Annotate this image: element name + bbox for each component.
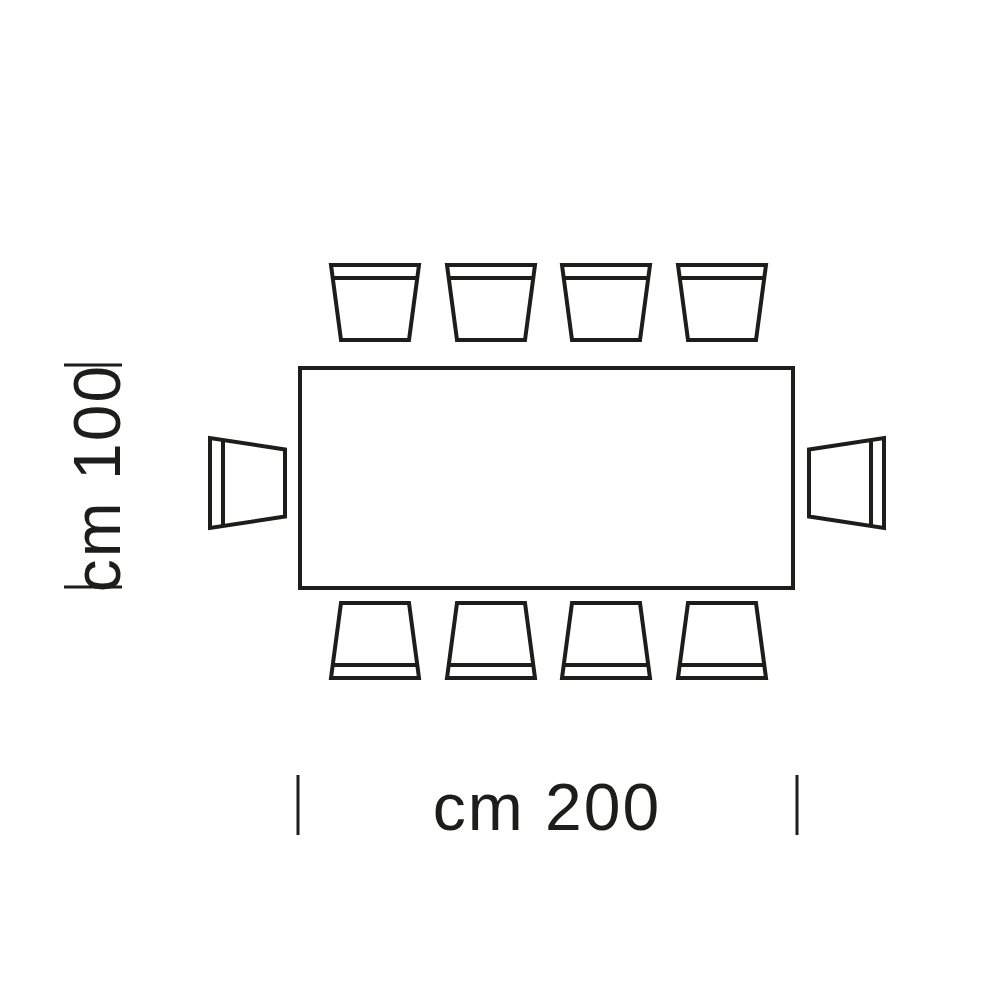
chair-top-4 [678, 265, 766, 340]
diagram-line-work [210, 265, 884, 678]
chair-top-2 [447, 265, 535, 340]
depth-dimension-label: cm 100 [60, 364, 134, 592]
chair-right [809, 438, 884, 528]
dimension-ticks [64, 365, 797, 835]
seating-plan-svg: cm 200 cm 100 [0, 0, 1000, 1000]
chair-left [210, 438, 285, 528]
chair-top-3 [562, 265, 650, 340]
chair-bottom-3 [562, 603, 650, 678]
chair-bottom-1 [331, 603, 419, 678]
table-top [300, 368, 793, 588]
width-dimension-label: cm 200 [433, 770, 661, 844]
chair-bottom-4 [678, 603, 766, 678]
chair-top-1 [331, 265, 419, 340]
chair-bottom-2 [447, 603, 535, 678]
table-dimensions-diagram: cm 200 cm 100 [0, 0, 1000, 1000]
